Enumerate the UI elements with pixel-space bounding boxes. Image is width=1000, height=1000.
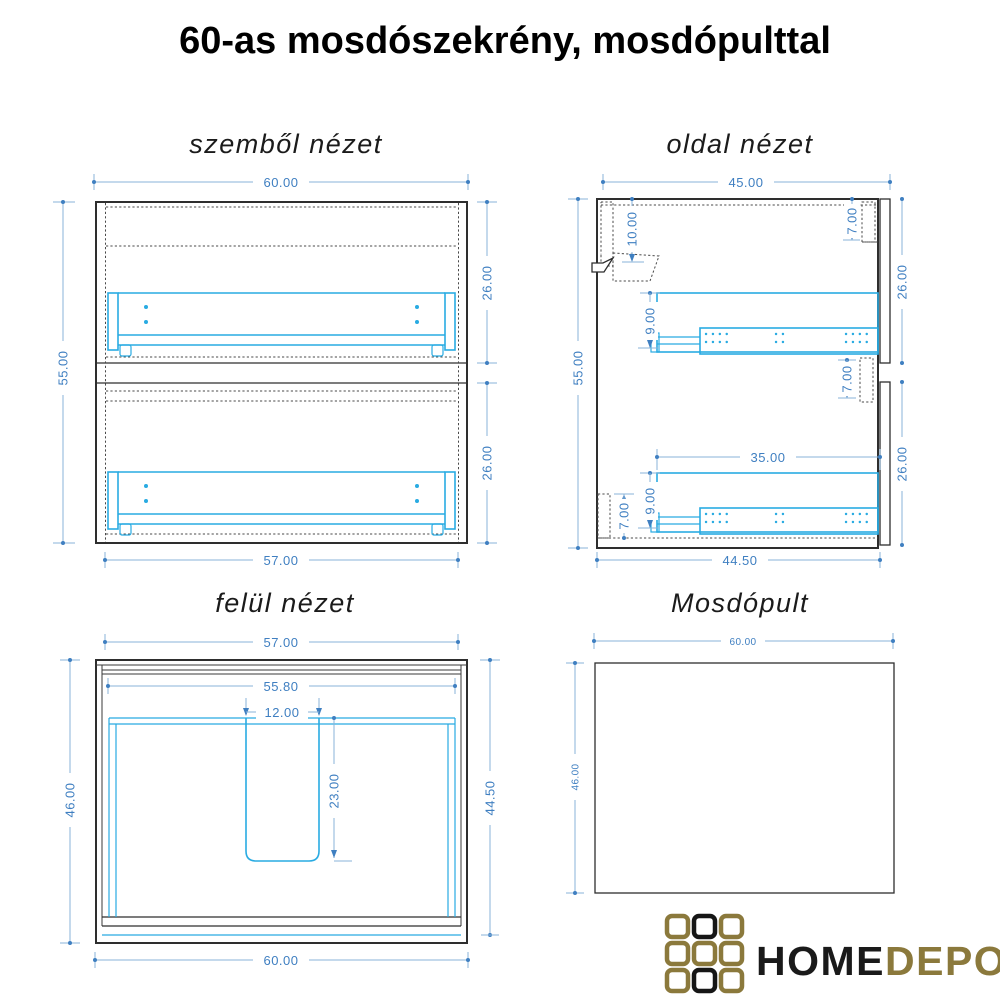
countertop-view: Mosdópult 60.00 46.00 bbox=[566, 588, 895, 895]
top-dim-carcass-depth: 44.50 bbox=[480, 658, 500, 937]
svg-text:9.00: 9.00 bbox=[643, 487, 658, 514]
page-title: 60-as mosdószekrény, mosdópulttal bbox=[179, 20, 831, 62]
svg-text:57.00: 57.00 bbox=[263, 553, 298, 568]
svg-text:12.00: 12.00 bbox=[264, 705, 299, 720]
svg-text:23.00: 23.00 bbox=[327, 773, 342, 808]
side-dim-mid-rail: 7.00 bbox=[838, 358, 856, 398]
svg-text:55.80: 55.80 bbox=[263, 679, 298, 694]
sink-cutout bbox=[246, 718, 319, 861]
side-dim-top-rail: 7.00 bbox=[843, 197, 860, 240]
front-dim-top-drawer: 26.00 bbox=[477, 200, 497, 365]
top-dim-cutout-depth: 23.00 bbox=[326, 716, 352, 861]
side-dim-overall-depth: 45.00 bbox=[601, 174, 892, 190]
front-top-drawer-box bbox=[108, 293, 455, 356]
top-dim-overall-depth: 46.00 bbox=[60, 658, 80, 945]
top-view: felül nézet 57.00 bbox=[60, 588, 500, 968]
svg-text:26.00: 26.00 bbox=[480, 265, 495, 300]
top-inner-cyan bbox=[102, 718, 461, 935]
side-top-drawer-box bbox=[651, 293, 878, 354]
front-view: szemből nézet bbox=[53, 129, 497, 568]
svg-text:7.00: 7.00 bbox=[840, 365, 855, 392]
svg-text:60.00: 60.00 bbox=[263, 175, 298, 190]
countertop-view-title: Mosdópult bbox=[671, 588, 809, 618]
svg-text:46.00: 46.00 bbox=[571, 763, 582, 790]
vanity-technical-drawing: 60-as mosdószekrény, mosdópulttal szembő… bbox=[0, 0, 1000, 1000]
countertop-outline bbox=[595, 663, 894, 893]
svg-text:45.00: 45.00 bbox=[728, 175, 763, 190]
front-bottom-drawer-box bbox=[108, 472, 455, 535]
svg-text:26.00: 26.00 bbox=[895, 446, 910, 481]
svg-text:7.00: 7.00 bbox=[845, 207, 860, 234]
top-dim-cutout-width: 12.00 bbox=[243, 698, 322, 720]
front-dim-overall-width: 60.00 bbox=[92, 174, 470, 190]
drawing-canvas: 60-as mosdószekrény, mosdópulttal szembő… bbox=[0, 0, 1000, 1000]
side-dim-overall-height: 55.00 bbox=[568, 197, 588, 550]
svg-text:60.00: 60.00 bbox=[263, 953, 298, 968]
svg-text:10.00: 10.00 bbox=[625, 211, 640, 246]
side-dim-bottom-rail: 7.00 bbox=[614, 494, 634, 540]
homedepo-logo: HOMEDEPO bbox=[667, 916, 1000, 991]
countertop-dim-width: 60.00 bbox=[592, 633, 895, 649]
svg-text:55.00: 55.00 bbox=[571, 350, 586, 385]
svg-text:9.00: 9.00 bbox=[643, 307, 658, 334]
svg-text:60.00: 60.00 bbox=[729, 637, 756, 648]
side-dim-hanger-offset: 10.00 bbox=[622, 197, 644, 262]
logo-grid-icon bbox=[667, 916, 742, 991]
svg-text:57.00: 57.00 bbox=[263, 635, 298, 650]
svg-text:35.00: 35.00 bbox=[750, 450, 785, 465]
side-view-title: oldal nézet bbox=[666, 129, 813, 159]
svg-text:44.50: 44.50 bbox=[483, 780, 498, 815]
countertop-dim-depth: 46.00 bbox=[566, 661, 584, 895]
svg-text:44.50: 44.50 bbox=[722, 553, 757, 568]
top-view-title: felül nézet bbox=[215, 588, 355, 618]
top-dim-countertop-width: 60.00 bbox=[93, 952, 470, 968]
side-bottom-drawer-box bbox=[651, 473, 878, 534]
svg-text:26.00: 26.00 bbox=[895, 264, 910, 299]
side-dim-slide-length: 35.00 bbox=[655, 449, 882, 470]
svg-text:7.00: 7.00 bbox=[617, 502, 632, 529]
top-dim-inner-width: 55.80 bbox=[106, 678, 457, 694]
front-view-title: szemből nézet bbox=[189, 129, 383, 159]
side-dim-bottom-front: 26.00 bbox=[894, 380, 910, 547]
front-dim-carcass-width: 57.00 bbox=[103, 552, 460, 568]
side-dim-top-front: 26.00 bbox=[894, 197, 910, 365]
side-view: oldal nézet bbox=[568, 129, 910, 568]
svg-text:46.00: 46.00 bbox=[63, 782, 78, 817]
front-dim-overall-height: 55.00 bbox=[53, 200, 75, 545]
side-dim-carcass-depth: 44.50 bbox=[595, 552, 882, 568]
logo-wordmark: HOMEDEPO bbox=[756, 938, 1000, 984]
front-dim-bottom-drawer: 26.00 bbox=[477, 381, 497, 545]
top-dim-carcass-width: 57.00 bbox=[103, 634, 460, 650]
front-cabinet-outline bbox=[96, 202, 467, 543]
svg-text:55.00: 55.00 bbox=[56, 350, 71, 385]
top-outline bbox=[96, 660, 467, 943]
svg-text:26.00: 26.00 bbox=[480, 445, 495, 480]
